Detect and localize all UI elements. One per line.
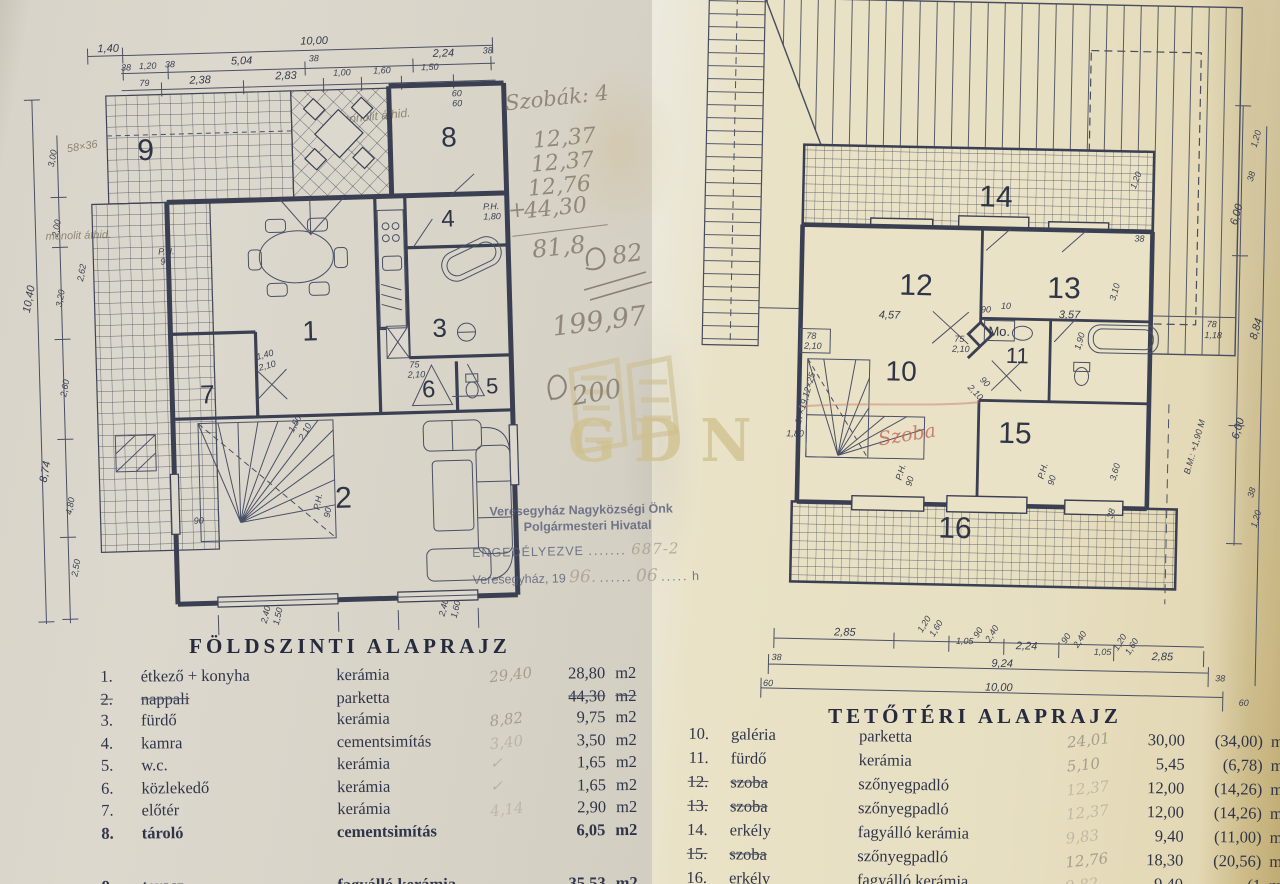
dim-label: 1,20	[1249, 129, 1263, 149]
stamp-approved-line: ENGEDÉLYEZVE ....... 687-2	[472, 540, 699, 561]
dim-label: 60	[1239, 698, 1249, 708]
legend-unit: m2	[606, 872, 638, 884]
legend-value: 12,00	[1126, 800, 1184, 824]
interior-walls	[167, 193, 513, 419]
dim-label: 2,10	[951, 344, 970, 354]
dim-label: 78	[806, 331, 816, 341]
washroom-label: Mo.	[988, 323, 1010, 338]
legend-no: 16.	[663, 865, 707, 884]
legend-row: 8. tároló cementsimítás 6,05 m2	[62, 818, 637, 844]
legend-no: 3.	[62, 710, 114, 732]
legend-value: 44,30	[551, 685, 606, 707]
legend-unit: m2	[1261, 826, 1280, 849]
dim-label: 10,40	[21, 284, 38, 314]
ph-label: 1,80	[483, 211, 501, 221]
ph-label: 90	[322, 507, 334, 519]
dim-label: 2,24	[432, 47, 455, 60]
dim-label: 1,60	[449, 600, 463, 619]
room-label: 13	[1047, 272, 1081, 306]
room-label: 8	[441, 121, 457, 152]
dim-label: 10,00	[985, 681, 1014, 694]
ground-floor-title: FÖLDSZINTI ALAPRAJZ	[170, 634, 530, 659]
legend-name: erkély	[707, 866, 857, 884]
legend-unit: m2	[605, 818, 637, 840]
legend-material: fagyálló kerámia	[857, 868, 1065, 884]
legend-no: 7.	[62, 800, 114, 822]
ground-floor-legend: 1. étkező + konyha kerámia 29,40 28,80 m…	[61, 662, 638, 884]
dim-label: 90	[981, 304, 991, 314]
dim-label: 2,85	[833, 626, 857, 638]
room-label: 15	[998, 417, 1032, 451]
dim-label: 1,05	[956, 636, 975, 646]
legend-name: szoba	[707, 842, 857, 867]
legend-material: kerámia	[337, 707, 490, 730]
dining-table	[247, 217, 348, 297]
legend-paren-value: (1	[1183, 873, 1261, 884]
legend-material: fagyálló kerámia	[337, 873, 490, 884]
legend-material: szőnyegpadló	[858, 772, 1066, 798]
legend-no: 1.	[61, 666, 113, 688]
legend-value: 35,53	[551, 872, 605, 884]
room-label: 12	[899, 269, 933, 303]
legend-no: 12.	[664, 769, 708, 793]
room-label: 11	[1006, 343, 1029, 368]
legend-no: 10.	[665, 721, 709, 745]
legend-no: 14.	[664, 817, 708, 841]
legend-no: 13.	[664, 793, 708, 817]
room-label: 6	[422, 376, 436, 403]
dim-label: 3,00	[46, 149, 59, 168]
dim-label: 38	[309, 53, 319, 63]
legend-name: w.c.	[113, 753, 337, 776]
legend-name: közlekedő	[113, 776, 337, 799]
legend-material: cementsimítás	[337, 730, 490, 753]
legend-unit: m2	[1262, 778, 1280, 801]
stamp-dots: .....	[661, 569, 689, 583]
kitchen-counter	[377, 210, 406, 329]
legend-value: 9,75	[551, 706, 606, 728]
legend-name: kamra	[113, 731, 337, 754]
dim-label: 4,80	[64, 496, 77, 515]
room-label: 16	[938, 511, 972, 545]
dim-label: 2,40	[1070, 629, 1088, 650]
legend-row: 9. terasz fagyálló kerámia 35,53 m2	[63, 872, 638, 884]
dim-label: 38	[1215, 673, 1225, 683]
hand-approx-value: 82	[610, 238, 644, 270]
stamp-permit-number: 687-2	[631, 539, 680, 558]
dim-label: 5,04	[231, 55, 253, 68]
stamp-city-label: Veresegyház, 19	[472, 571, 565, 587]
legend-unit: m2	[1261, 874, 1280, 884]
dim-label: 2,40	[983, 623, 1001, 644]
legend-material: szőnyegpadló	[857, 844, 1065, 870]
dim-label: 1,20	[139, 61, 157, 71]
legend-unit: m2	[1263, 730, 1280, 753]
dim-label: 2,50	[69, 558, 82, 578]
legend-paren-value: (6,78)	[1184, 753, 1262, 777]
dim-label: 4,57	[879, 309, 902, 321]
room-label: 3	[432, 313, 447, 343]
room-label: 10	[885, 355, 917, 387]
legend-name: terasz	[114, 874, 337, 884]
legend-paren-value: (14,26)	[1184, 801, 1262, 825]
legend-no: 11.	[665, 745, 709, 769]
dim-label: 1,50	[271, 607, 285, 626]
dim-label: 75	[409, 359, 420, 369]
dim-label: 1,00	[333, 67, 351, 77]
ph-label: P.H.	[483, 201, 500, 211]
room-label: 2	[335, 481, 353, 514]
room-label: 5	[486, 373, 499, 398]
dim-label: 9,24	[991, 658, 1013, 670]
legend-value: 30,00	[1127, 728, 1185, 752]
stamp-approved-label: ENGEDÉLYEZVE	[472, 544, 584, 560]
dim-label: 38	[165, 59, 175, 69]
attic-floor-area	[797, 225, 1153, 509]
room-label: 7	[200, 379, 215, 409]
legend-value: 28,80	[551, 662, 606, 684]
dim-label: 3,20	[54, 289, 67, 308]
dim-label: 79	[139, 78, 149, 88]
legend-value: 18,30	[1125, 848, 1183, 872]
dim-label: 38	[771, 652, 781, 662]
legend-material: kerámia	[337, 797, 490, 820]
legend-material: kerámia	[859, 748, 1067, 774]
legend-no: 8.	[62, 822, 113, 844]
legend-material: cementsimítás	[337, 820, 490, 843]
legend-no: 4.	[62, 732, 114, 754]
legend-material: parketta	[859, 724, 1067, 750]
dim-label: 2,24	[1015, 640, 1038, 652]
legend-no: 15.	[663, 841, 707, 865]
legend-name: étkező + konyha	[113, 664, 337, 687]
legend-unit: m2	[606, 796, 637, 818]
legend-paren-value: (14,26)	[1184, 777, 1262, 801]
dim-label: 8,74	[38, 460, 54, 483]
windows	[169, 425, 522, 609]
dim-label: 78	[1207, 319, 1217, 329]
dim-label: 1,80	[786, 428, 804, 438]
dim-label: 2,60	[58, 379, 71, 399]
dim-label: 38	[1245, 170, 1257, 182]
dim-label: 2,38	[188, 74, 212, 87]
chimney-symbol	[386, 326, 409, 359]
legend-material: parketta	[336, 686, 489, 709]
dim-label: 10,00	[300, 35, 329, 48]
legend-unit: m2	[1262, 754, 1280, 777]
dim-label: 1,40	[97, 43, 120, 56]
legend-name: fürdő	[709, 746, 859, 771]
legend-name: szoba	[708, 794, 858, 819]
room-label: 9	[137, 134, 155, 167]
legend-name: erkély	[708, 818, 858, 843]
scanned-floorplan-page: 1,40 10,00 38 1,20 38 5,04 38 2,24 38 79…	[0, 0, 1280, 884]
room-label: 14	[979, 180, 1013, 214]
legend-name: szoba	[708, 770, 858, 795]
approval-stamp: Veresegyház Nagyközségi Önk Polgármester…	[471, 500, 699, 588]
legend-value: 1,65	[551, 751, 606, 773]
legend-material: kerámia	[336, 663, 489, 686]
dim-label: B.M.: +1,90 M	[1182, 418, 1207, 475]
legend-value: 2,90	[552, 796, 607, 818]
legend-row: 5. w.c. kerámia ✓ 1,65 m2	[62, 751, 637, 778]
dim-label: 38	[121, 62, 131, 72]
dim-label: 3,57	[1059, 309, 1082, 321]
wc-fixture	[466, 374, 479, 398]
legend-material: fagyálló kerámia	[858, 820, 1066, 846]
attic-legend: 10. galéria parketta 24,01 30,00 (34,00)…	[663, 721, 1280, 884]
legend-value: 9,40	[1125, 872, 1183, 884]
legend-value: 6,05	[551, 819, 605, 841]
balcony-16	[790, 492, 1177, 589]
legend-material: szőnyegpadló	[858, 796, 1066, 822]
stamp-month: 06	[636, 566, 658, 586]
dim-label: 38	[1134, 234, 1144, 244]
stamp-dots: .......	[588, 543, 627, 558]
dim-label: 2,62	[75, 263, 88, 283]
legend-unit: m2	[1261, 850, 1280, 873]
stamp-year: 96.	[569, 567, 596, 587]
legend-unit: m2	[605, 706, 636, 728]
dim-label: 1,50	[421, 62, 439, 72]
stamp-suffix: h	[692, 569, 699, 583]
dim-label: 6,00	[1230, 416, 1248, 441]
hand-sum: 81,8	[531, 230, 587, 263]
dim-label: 1,20	[1249, 509, 1263, 529]
dim-label: 38	[1245, 486, 1257, 498]
legend-unit: m2	[606, 751, 637, 773]
dim-label: 1,18	[1204, 330, 1222, 340]
room-label: 4	[441, 205, 455, 232]
legend-value: 1,65	[552, 774, 607, 796]
attic-plan-drawing: 4,57 90 10 3,57 3,10 1,20 38 6,00 78 1,1…	[643, 0, 1280, 711]
legend-material: kerámia	[337, 775, 490, 798]
dim-label: 1,60	[373, 65, 391, 75]
legend-value: 9,40	[1125, 824, 1183, 848]
dim-label: 60	[763, 678, 773, 688]
legend-value: 12,00	[1126, 776, 1184, 800]
dim-label: 75	[954, 334, 965, 344]
legend-unit: m2	[605, 662, 636, 684]
legend-value: 3,50	[551, 729, 606, 751]
legend-name: galéria	[709, 722, 859, 747]
legend-unit: m2	[606, 773, 637, 795]
dim-label: 38	[483, 45, 493, 55]
legend-unit: m2	[605, 684, 636, 706]
legend-no: 6.	[62, 777, 114, 799]
legend-unit: m2	[606, 728, 637, 750]
legend-name: előtér	[114, 798, 338, 821]
watermark-text: GDN	[568, 406, 770, 475]
legend-no: 2.	[61, 688, 113, 710]
dim-label: 2,10	[803, 341, 822, 351]
legend-name: nappali	[113, 687, 337, 710]
legend-material: kerámia	[337, 752, 490, 775]
legend-hand-check: ✓	[490, 775, 551, 797]
stamp-dots: ......	[600, 570, 633, 585]
legend-no: 9.	[63, 876, 114, 884]
legend-value: 5,45	[1127, 752, 1185, 776]
dim-label: 60	[452, 98, 462, 108]
legend-no: 5.	[62, 755, 114, 777]
legend-row: 6. közlekedő kerámia ✓ 1,65 m2	[62, 773, 637, 800]
dim-label: 2,83	[274, 70, 298, 83]
legend-hand-check: ✓	[490, 753, 551, 775]
legend-name: fürdő	[113, 708, 337, 731]
legend-paren-value: (34,00)	[1185, 729, 1263, 753]
legend-unit: m2	[1262, 802, 1280, 825]
hand-note-58x36: 58×36	[66, 138, 99, 155]
legend-name: tároló	[114, 821, 337, 844]
terrace-double-door	[280, 197, 345, 235]
dim-label: 60	[452, 88, 462, 98]
room-label: 1	[302, 315, 318, 346]
dim-label: 10	[1001, 301, 1011, 311]
terrace-tile-hatch	[89, 88, 402, 552]
dim-label: 1,05	[1094, 647, 1113, 657]
legend-paren-value: (20,56)	[1183, 849, 1261, 873]
dim-label: 2,85	[1151, 651, 1175, 663]
legend-paren-value: (11,00)	[1183, 825, 1261, 849]
